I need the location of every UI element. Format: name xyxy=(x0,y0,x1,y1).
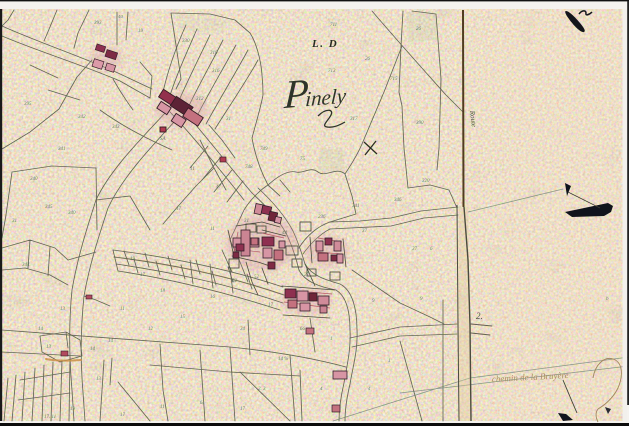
svg-text:31: 31 xyxy=(226,117,231,122)
svg-text:44: 44 xyxy=(282,231,288,236)
svg-text:14: 14 xyxy=(38,327,44,332)
svg-text:390: 390 xyxy=(416,121,424,126)
svg-text:26: 26 xyxy=(416,27,422,32)
svg-text:312: 312 xyxy=(196,97,204,102)
svg-text:66: 66 xyxy=(300,327,306,332)
svg-text:40: 40 xyxy=(118,15,124,20)
svg-text:310: 310 xyxy=(210,51,218,56)
svg-text:26: 26 xyxy=(365,57,371,62)
svg-text:749: 749 xyxy=(260,147,268,152)
svg-text:15: 15 xyxy=(180,315,186,320)
svg-text:52: 52 xyxy=(232,279,238,284)
svg-text:11: 11 xyxy=(190,167,195,172)
svg-text:341: 341 xyxy=(352,204,360,209)
svg-text:27: 27 xyxy=(304,273,310,278)
svg-text:16: 16 xyxy=(210,295,216,300)
svg-text:SA: SA xyxy=(160,137,167,142)
svg-text:343: 343 xyxy=(112,125,120,130)
svg-text:17: 17 xyxy=(268,303,274,308)
svg-text:316: 316 xyxy=(212,69,220,74)
svg-text:13: 13 xyxy=(96,377,102,382)
svg-text:14 %: 14 % xyxy=(278,357,288,362)
svg-text:13: 13 xyxy=(60,307,66,312)
svg-text:2.: 2. xyxy=(476,311,483,321)
svg-text:L. D: L. D xyxy=(311,38,338,50)
svg-text:345: 345 xyxy=(45,205,53,210)
svg-text:341: 341 xyxy=(58,147,66,152)
svg-text:340: 340 xyxy=(68,211,76,216)
svg-text:2. 3: 2. 3 xyxy=(258,387,266,392)
svg-text:31: 31 xyxy=(244,219,249,224)
svg-text:1: 1 xyxy=(388,359,391,364)
svg-text:14: 14 xyxy=(108,339,114,344)
svg-text:18: 18 xyxy=(160,289,166,294)
svg-text:320: 320 xyxy=(422,179,430,184)
svg-text:52: 52 xyxy=(254,275,260,280)
svg-text:17: 17 xyxy=(140,273,146,278)
svg-text:17: 17 xyxy=(240,407,246,412)
svg-text:12: 12 xyxy=(148,327,154,332)
svg-text:344: 344 xyxy=(22,263,30,268)
svg-text:11: 11 xyxy=(210,227,215,232)
svg-text:19: 19 xyxy=(138,29,144,34)
svg-text:346: 346 xyxy=(394,198,402,203)
svg-text:715: 715 xyxy=(390,77,398,82)
svg-text:395: 395 xyxy=(24,102,32,107)
svg-text:342: 342 xyxy=(78,115,86,120)
svg-text:37: 37 xyxy=(412,247,418,252)
svg-text:748: 748 xyxy=(245,165,253,170)
svg-text:393: 393 xyxy=(94,21,102,26)
svg-text:330: 330 xyxy=(182,39,190,44)
svg-text:6.: 6. xyxy=(200,401,204,406)
svg-text:11: 11 xyxy=(120,307,125,312)
svg-text:19: 19 xyxy=(130,257,136,262)
svg-text:37: 37 xyxy=(362,229,368,234)
svg-text:236: 236 xyxy=(318,215,326,220)
svg-text:17. 11: 17. 11 xyxy=(44,415,56,420)
svg-text:317: 317 xyxy=(350,117,358,122)
svg-text:31: 31 xyxy=(12,219,17,224)
svg-text:13: 13 xyxy=(46,345,52,350)
svg-text:75: 75 xyxy=(300,157,306,162)
svg-text:17: 17 xyxy=(120,413,126,418)
svg-text:17: 17 xyxy=(176,207,182,212)
svg-text:14: 14 xyxy=(90,347,96,352)
svg-text:1: 1 xyxy=(330,337,333,342)
svg-text:340: 340 xyxy=(30,177,38,182)
svg-text:711: 711 xyxy=(330,23,337,28)
svg-text:34: 34 xyxy=(240,327,246,332)
svg-text:11: 11 xyxy=(160,405,165,410)
svg-text:19: 19 xyxy=(70,407,76,412)
svg-text:47: 47 xyxy=(216,185,222,190)
svg-text:713: 713 xyxy=(328,69,336,74)
